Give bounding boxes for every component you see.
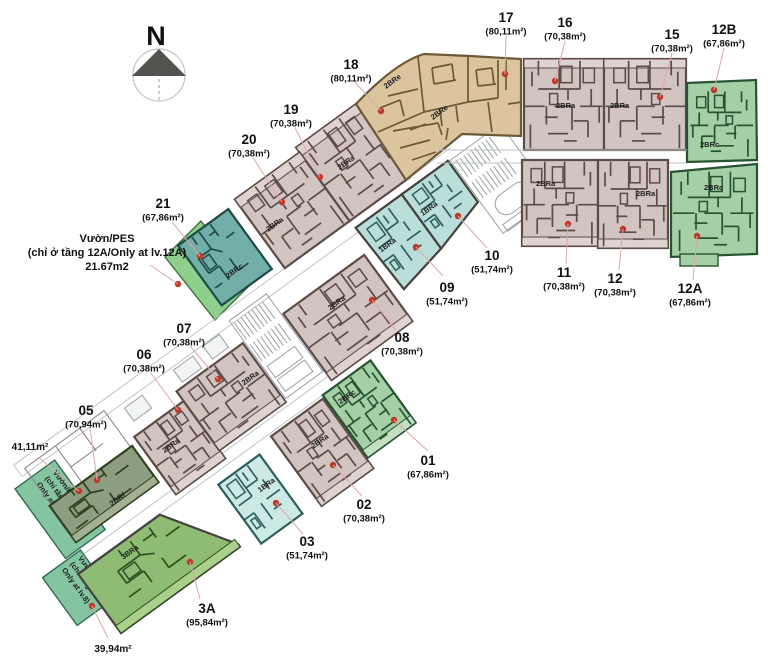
svg-text:(70,38m²): (70,38m²) [543,282,585,293]
svg-text:2BRa: 2BRa [536,179,556,188]
svg-text:15: 15 [664,27,680,42]
svg-text:07: 07 [176,321,191,336]
svg-text:2BRc: 2BRc [700,140,719,149]
svg-text:2BRa: 2BRa [610,101,630,110]
svg-text:09: 09 [439,280,454,295]
svg-text:12A: 12A [678,281,703,296]
svg-text:11: 11 [557,265,572,280]
svg-text:(70,38m²): (70,38m²) [270,119,312,130]
svg-text:05: 05 [78,403,94,418]
svg-text:03: 03 [299,534,315,549]
svg-text:(67,86m²): (67,86m²) [669,298,711,309]
svg-text:21.67m2: 21.67m2 [85,261,128,273]
svg-text:19: 19 [283,102,298,117]
svg-text:Vườn/PES: Vườn/PES [80,233,135,245]
svg-text:2BRc: 2BRc [704,183,723,192]
svg-text:(67,86m²): (67,86m²) [142,213,184,224]
svg-text:(67,86m²): (67,86m²) [407,470,449,481]
svg-text:(80,11m²): (80,11m²) [485,27,526,38]
svg-text:2BRa: 2BRa [636,189,656,198]
svg-text:06: 06 [136,347,152,362]
svg-text:(51,74m²): (51,74m²) [426,297,468,308]
svg-text:N: N [146,21,166,51]
svg-text:21: 21 [155,196,171,211]
svg-text:(70,38m²): (70,38m²) [228,149,270,160]
svg-text:08: 08 [394,330,410,345]
svg-text:(70,38m²): (70,38m²) [544,32,586,43]
svg-text:(67,86m²): (67,86m²) [703,39,745,50]
svg-text:(80,11m²): (80,11m²) [330,74,371,85]
svg-text:(70,38m²): (70,38m²) [594,288,636,299]
svg-text:16: 16 [557,15,573,30]
svg-text:12B: 12B [712,22,737,37]
svg-text:01: 01 [420,453,436,468]
svg-text:41,11m²: 41,11m² [12,442,49,453]
svg-text:12: 12 [607,271,622,286]
svg-text:39,94m²: 39,94m² [94,644,132,655]
svg-text:18: 18 [343,57,359,72]
svg-text:(chỉ ở tầng 12A/Only at lv.12A: (chỉ ở tầng 12A/Only at lv.12A) [28,247,187,259]
svg-text:(70,38m²): (70,38m²) [381,347,423,358]
svg-text:(70,38m²): (70,38m²) [123,364,165,375]
svg-text:(70,38m²): (70,38m²) [651,44,693,55]
svg-text:(70,38m²): (70,38m²) [343,514,385,525]
svg-text:17: 17 [498,10,513,25]
svg-text:(51,74m²): (51,74m²) [286,551,328,562]
svg-text:3A: 3A [198,601,216,616]
svg-text:02: 02 [356,497,371,512]
svg-text:2BRa: 2BRa [556,101,576,110]
svg-text:(70,38m²): (70,38m²) [163,338,205,349]
svg-text:10: 10 [484,248,499,263]
svg-text:(95,84m²): (95,84m²) [186,618,228,629]
svg-text:20: 20 [241,132,256,147]
svg-text:(51,74m²): (51,74m²) [471,265,513,276]
svg-text:(70,94m²): (70,94m²) [65,420,107,431]
